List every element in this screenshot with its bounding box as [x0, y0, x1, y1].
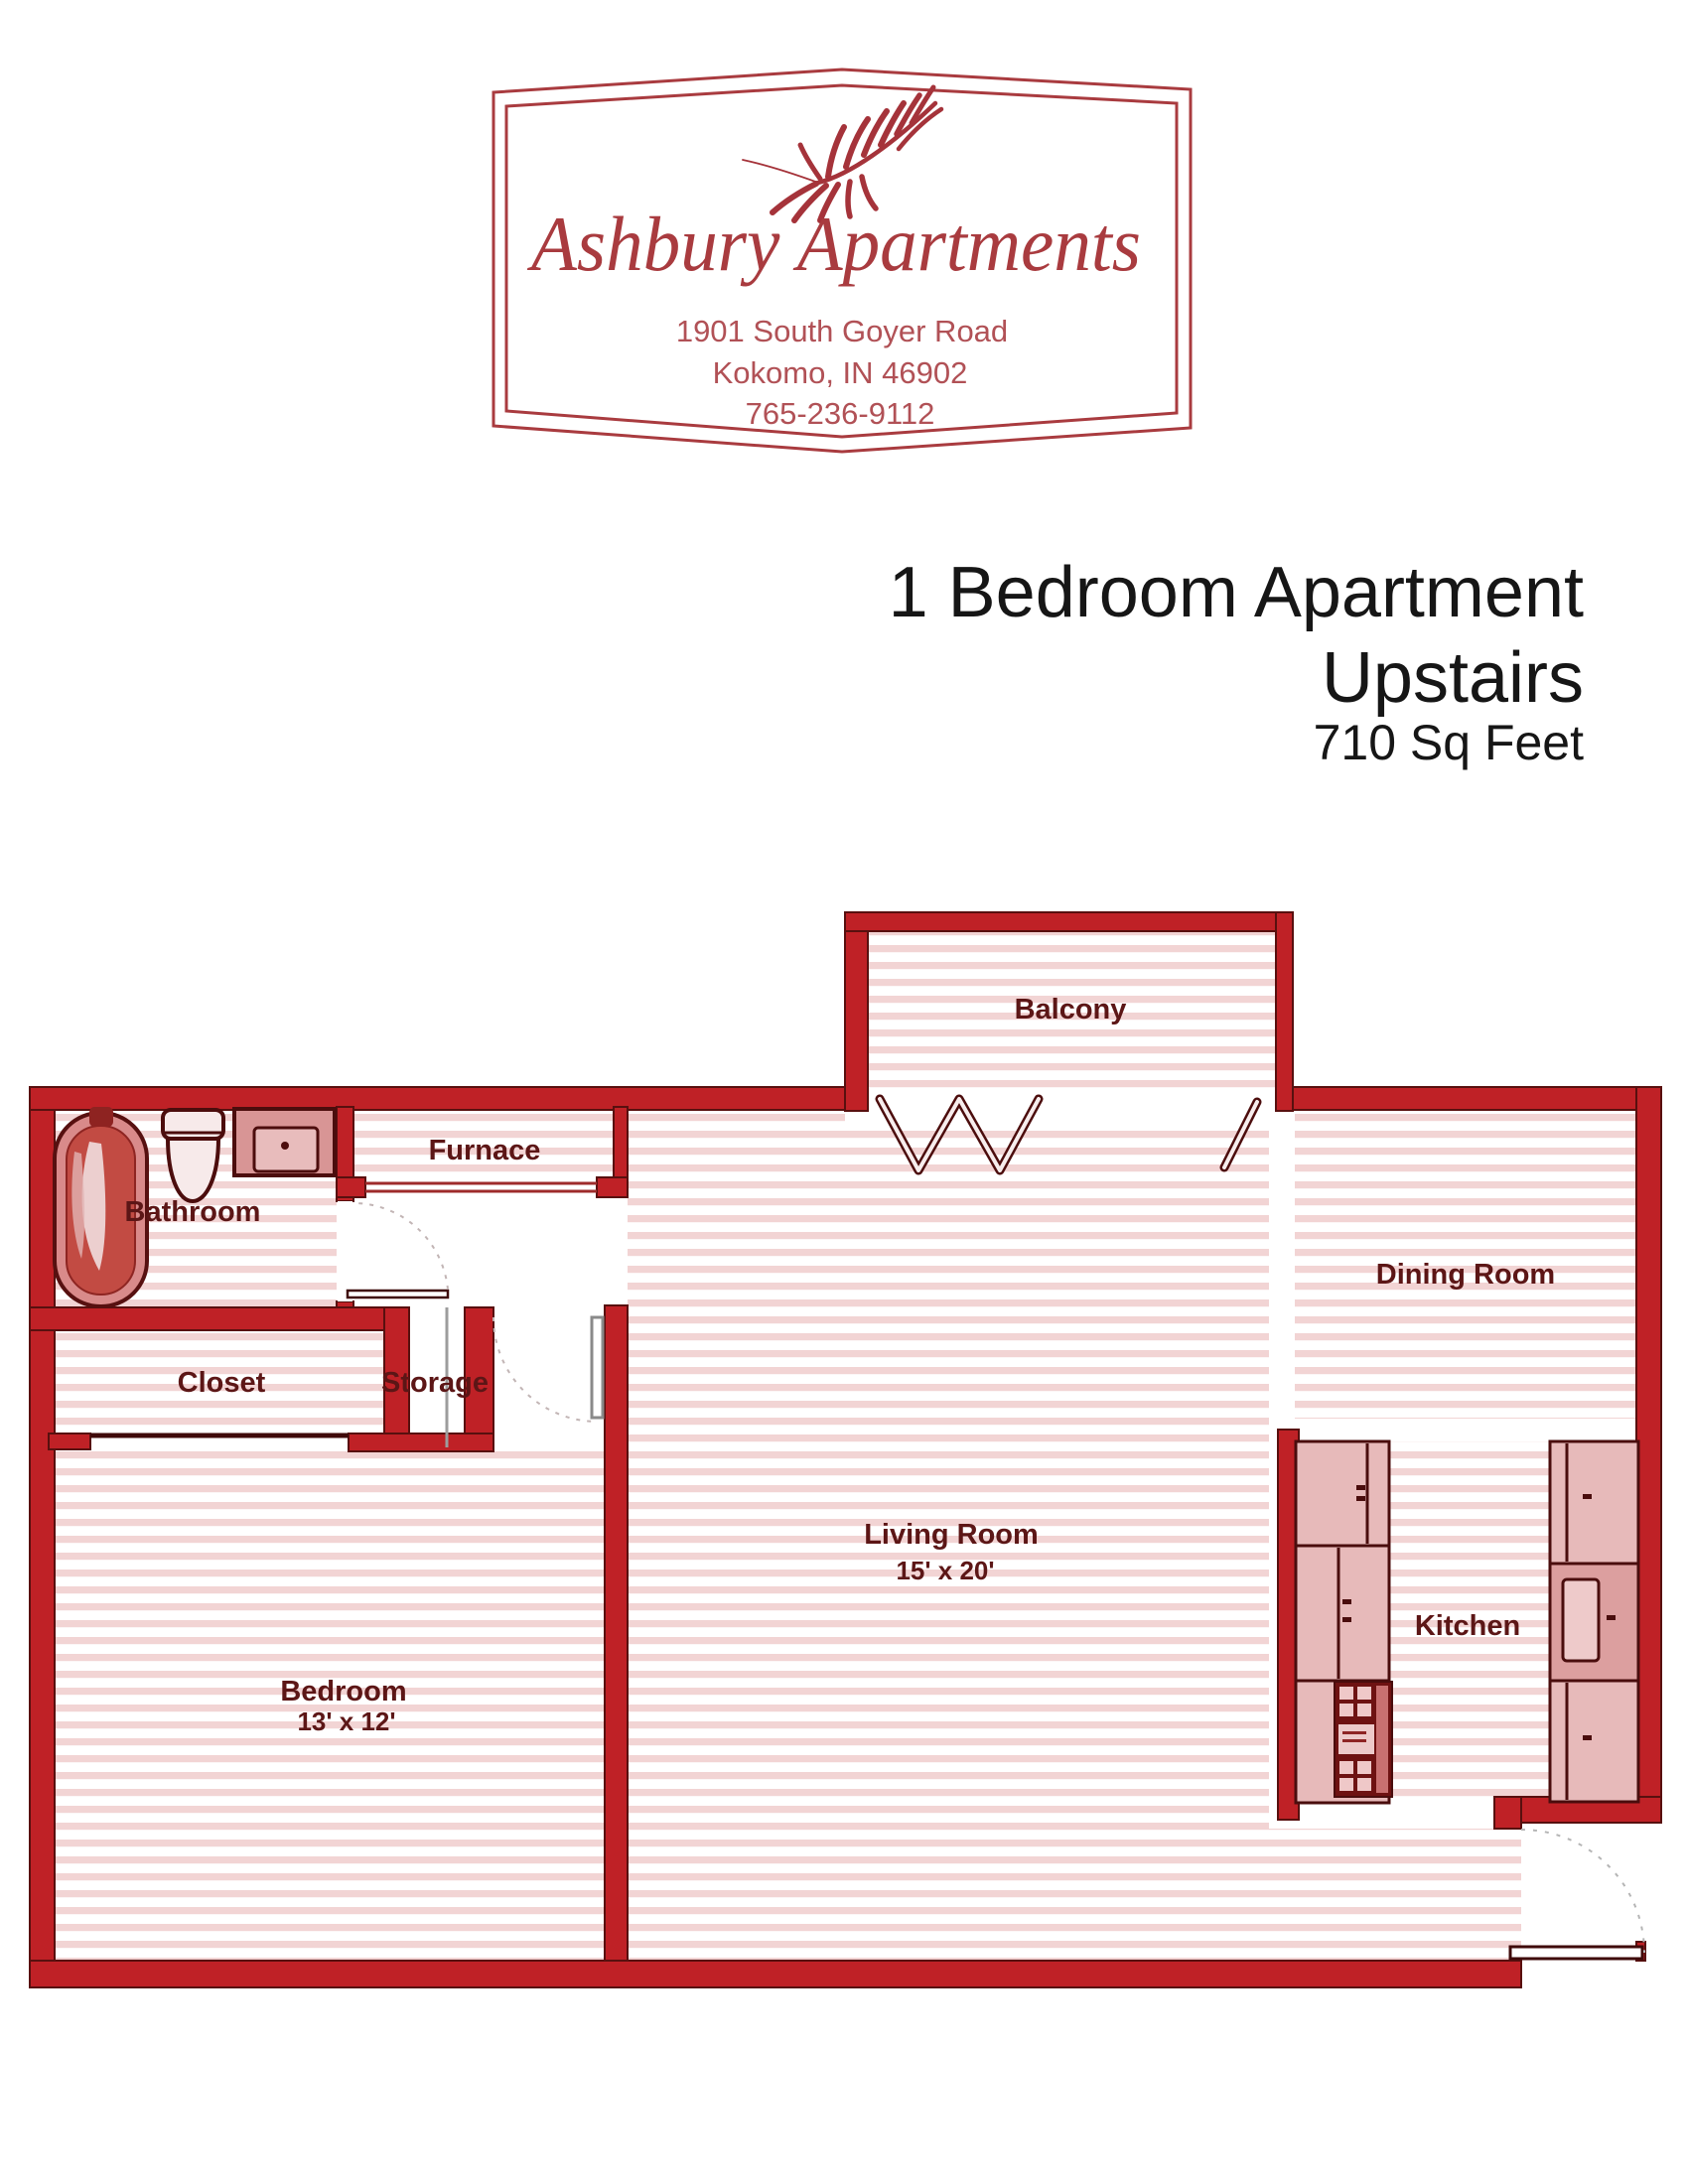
svg-text:Furnace: Furnace: [429, 1135, 541, 1166]
svg-text:Closet: Closet: [178, 1367, 266, 1399]
svg-text:Bedroom: Bedroom: [280, 1676, 406, 1707]
svg-text:Living Room: Living Room: [864, 1519, 1039, 1551]
svg-text:Dining Room: Dining Room: [1376, 1259, 1555, 1291]
svg-text:Storage: Storage: [381, 1367, 489, 1399]
svg-text:Kitchen: Kitchen: [1415, 1610, 1520, 1642]
svg-text:765-236-9112: 765-236-9112: [746, 396, 935, 431]
svg-text:13' x 12': 13' x 12': [297, 1706, 395, 1736]
svg-text:Kokomo, IN 46902: Kokomo, IN 46902: [713, 355, 968, 390]
svg-text:1901 South Goyer Road: 1901 South Goyer Road: [676, 314, 1008, 348]
svg-text:15' x 20': 15' x 20': [896, 1556, 994, 1585]
svg-text:Bathroom: Bathroom: [125, 1196, 261, 1228]
svg-text:Balcony: Balcony: [1015, 994, 1127, 1025]
svg-text:Ashbury Apartments: Ashbury Apartments: [526, 201, 1141, 287]
